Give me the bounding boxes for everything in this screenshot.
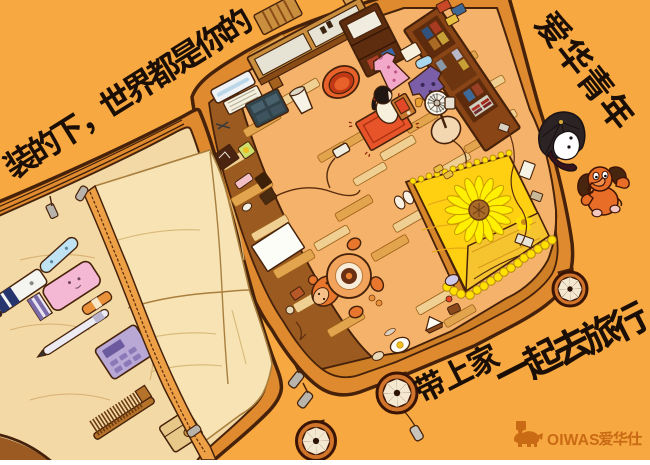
svg-text:OIWAS: OIWAS — [547, 432, 600, 449]
